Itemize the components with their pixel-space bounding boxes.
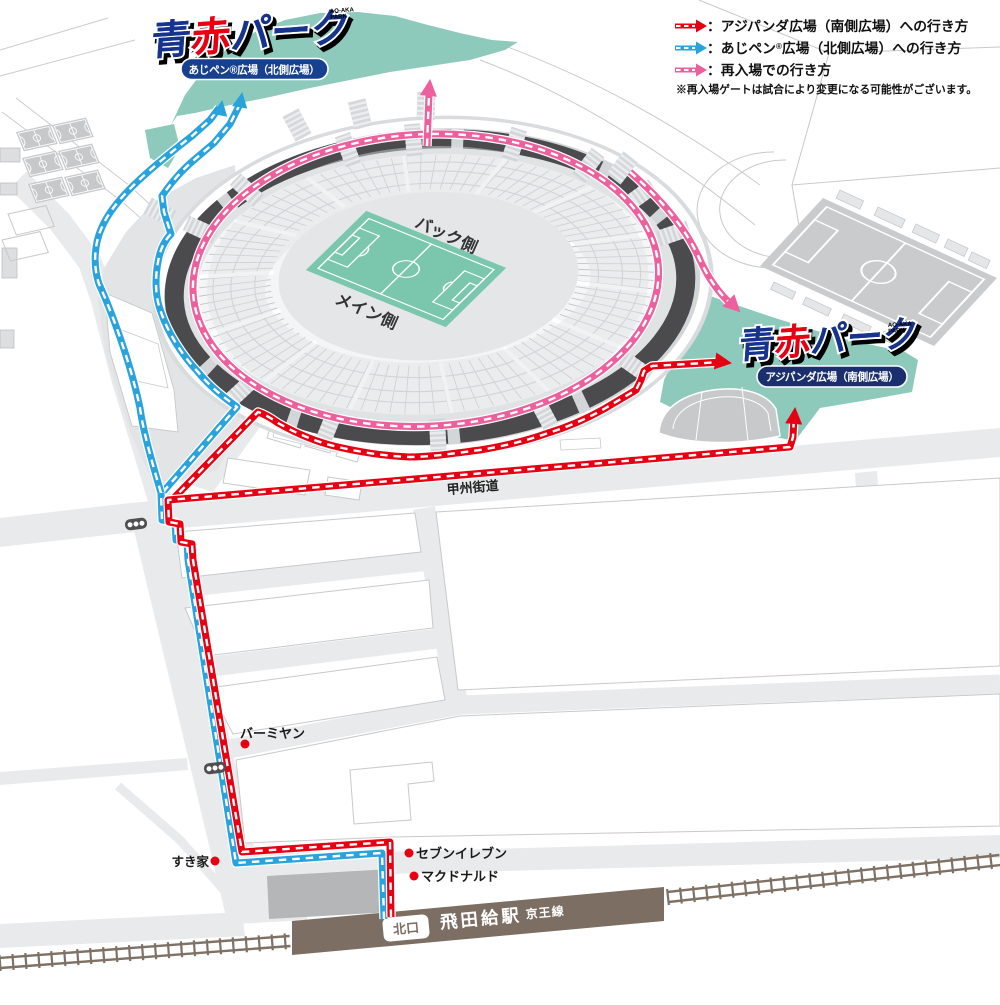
svg-text:セブンイレブン: セブンイレブン xyxy=(416,846,507,861)
svg-text:あじペン®広場（北側広場）: あじペン®広場（北側広場） xyxy=(188,64,319,77)
svg-text:北口: 北口 xyxy=(392,920,419,937)
svg-text:※再入場ゲートは試合により変更になる可能性がございます。: ※再入場ゲートは試合により変更になる可能性がございます。 xyxy=(676,82,977,96)
svg-text:：あじペン®広場（北側広場）への行き方: ：あじペン®広場（北側広場）への行き方 xyxy=(707,40,961,56)
svg-text:すき家: すき家 xyxy=(171,854,209,869)
svg-text:：アジパンダ広場（南側広場）への行き方: ：アジパンダ広場（南側広場）への行き方 xyxy=(707,18,969,34)
svg-text:マクドナルド: マクドナルド xyxy=(421,869,499,884)
svg-text:バーミヤン: バーミヤン xyxy=(240,726,305,741)
svg-text:：再入場での行き方: ：再入場での行き方 xyxy=(707,62,831,78)
svg-text:アジパンダ広場（南側広場）: アジパンダ広場（南側広場） xyxy=(765,371,898,384)
